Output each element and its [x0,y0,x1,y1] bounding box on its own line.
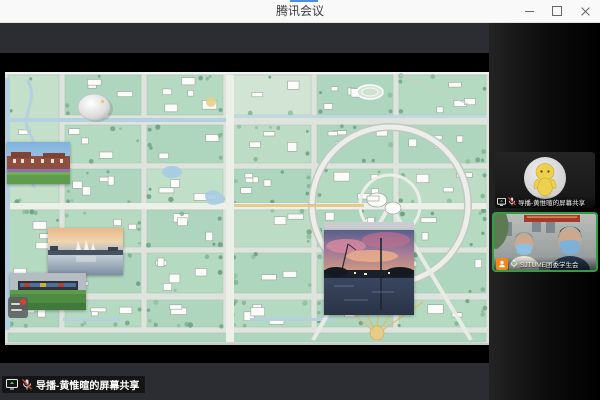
shared-screen-stage: 导播-黄惟暄的屏幕共享 [0,22,489,400]
participant-label: SJTUME团委学生会 [494,257,596,270]
orange-person-badge [496,258,508,270]
window-titlebar: 腾讯会议 [0,0,600,23]
photo-overlay-lake-sunset [48,228,123,275]
participant-tile-presenter[interactable]: 导播-黄惟暄的屏幕共享 [495,152,595,208]
window-controls [520,0,594,22]
photo-overlay-brick-building [7,142,70,184]
mic-on-icon [510,259,518,268]
participant-name: 导播-黄惟暄的屏幕共享 [518,197,585,207]
share-top-band [0,22,489,53]
participants-sidebar: 导播-黄惟暄的屏幕共享 [489,22,600,400]
share-presenter-label: 导播-黄惟暄的屏幕共享 [2,376,145,393]
yellow-figure-avatar [524,157,566,199]
minimize-button[interactable] [520,2,538,20]
participant-label: 导播-黄惟暄的屏幕共享 [495,195,595,208]
annotation-widget[interactable] [8,297,28,318]
close-button[interactable] [576,2,594,20]
participant-tile-students[interactable]: SJTUME团委学生会 [492,212,598,272]
close-icon [581,7,590,16]
mic-muted-icon [508,197,516,206]
mic-muted-icon [22,379,32,390]
screen-share-icon [497,198,506,206]
photo-overlay-dusk-harbor [324,230,414,315]
record-dot-icon [20,299,26,305]
maximize-icon [552,6,562,16]
avatar [524,157,566,199]
person-icon [498,260,506,268]
screen-share-icon [6,379,18,390]
maximize-button[interactable] [548,2,566,20]
window-title: 腾讯会议 [0,0,600,22]
minimize-icon [525,11,534,12]
participant-name: SJTUME团委学生会 [520,259,579,269]
share-presenter-text: 导播-黄惟暄的屏幕共享 [36,377,139,392]
